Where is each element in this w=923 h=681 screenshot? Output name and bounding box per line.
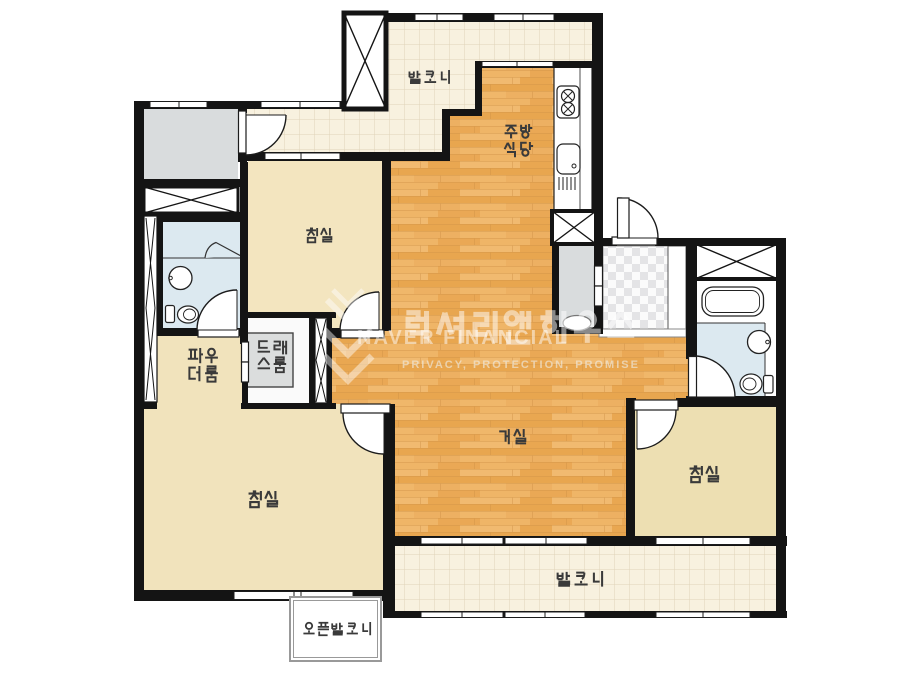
svg-text:NAVER FINANCIAL: NAVER FINANCIAL (357, 327, 569, 349)
svg-text:PRIVACY, PROTECTION, PROMISE: PRIVACY, PROTECTION, PROMISE (402, 359, 640, 371)
